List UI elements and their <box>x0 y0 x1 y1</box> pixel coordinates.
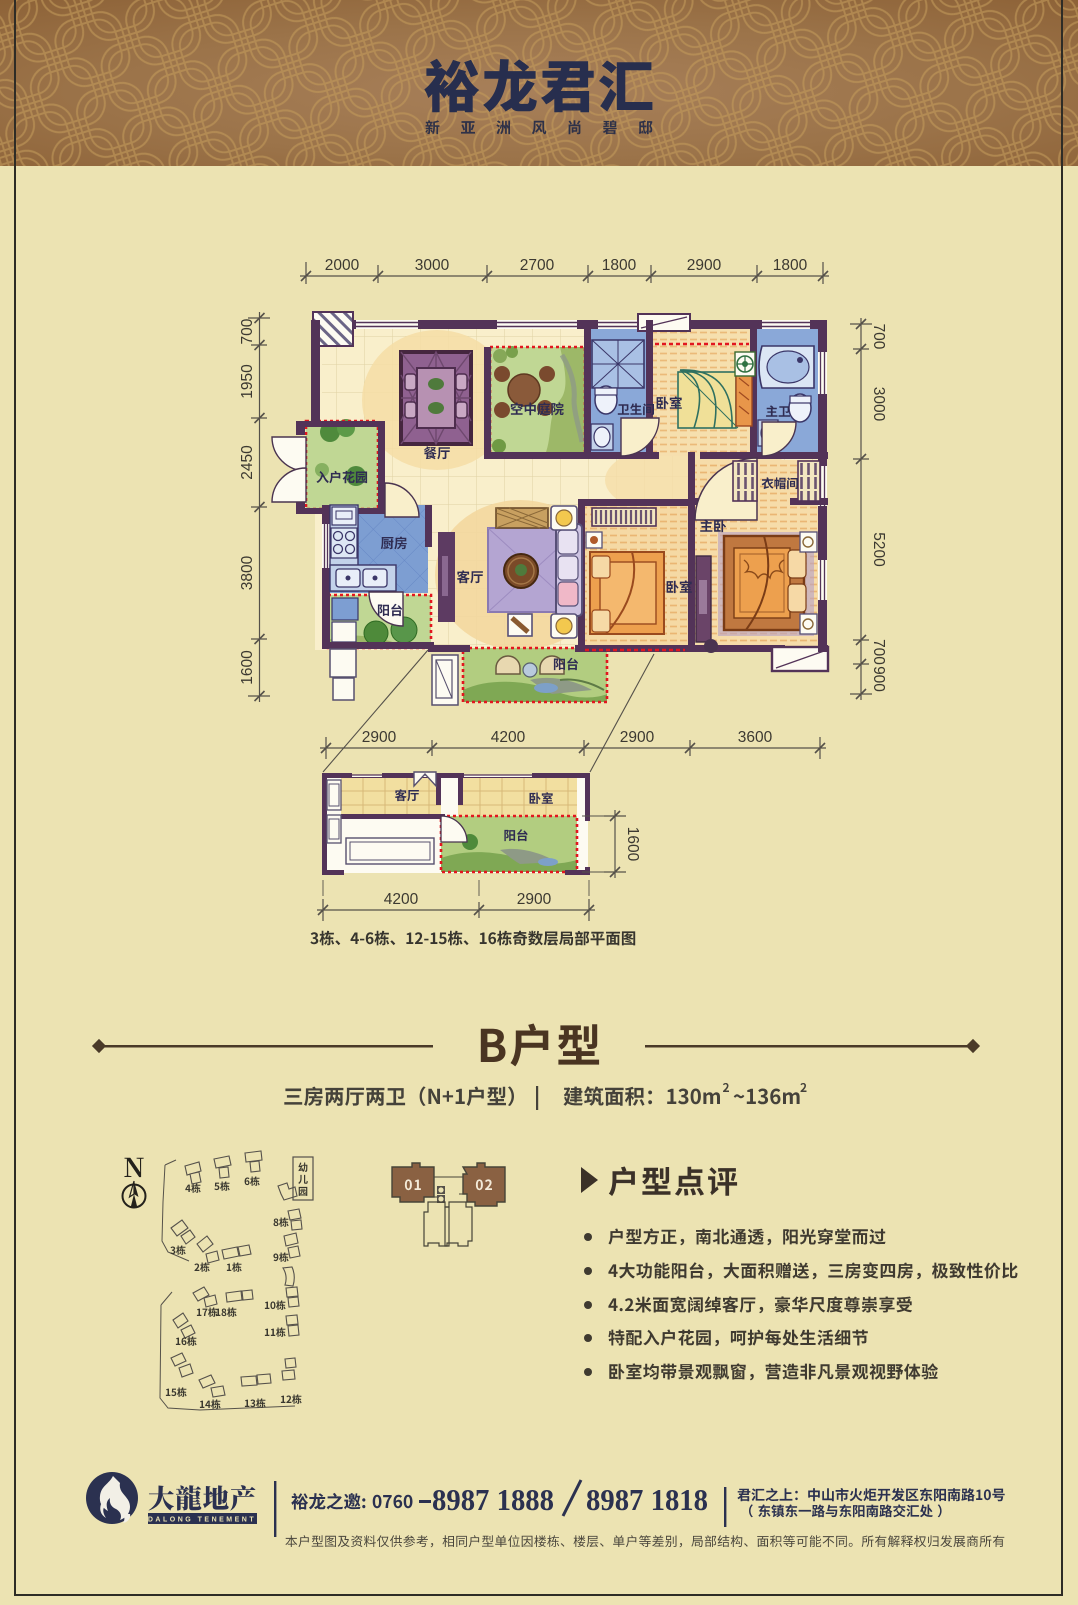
svg-text:2450: 2450 <box>239 445 256 480</box>
svg-text:5200: 5200 <box>870 532 887 567</box>
svg-text:700: 700 <box>870 639 887 665</box>
svg-text:700: 700 <box>870 324 887 350</box>
svg-text:3000: 3000 <box>415 257 450 274</box>
svg-text:3600: 3600 <box>738 729 773 746</box>
svg-text:4200: 4200 <box>491 729 526 746</box>
svg-text:3000: 3000 <box>870 387 887 422</box>
svg-text:2000: 2000 <box>325 257 360 274</box>
svg-text:1600: 1600 <box>239 650 256 685</box>
svg-text:3800: 3800 <box>239 555 256 590</box>
svg-text:8987 1888: 8987 1888 <box>432 1482 554 1517</box>
svg-text:1800: 1800 <box>602 257 637 274</box>
svg-text:2900: 2900 <box>620 729 655 746</box>
svg-text:2700: 2700 <box>520 257 555 274</box>
svg-text:700: 700 <box>239 318 256 344</box>
svg-text:900: 900 <box>870 666 887 692</box>
svg-text:2900: 2900 <box>362 729 397 746</box>
svg-text:8987 1818: 8987 1818 <box>586 1482 708 1517</box>
svg-text:1800: 1800 <box>773 257 808 274</box>
svg-text:1600: 1600 <box>624 827 641 862</box>
svg-text:2900: 2900 <box>687 257 722 274</box>
svg-text:DALONG TENEMENT: DALONG TENEMENT <box>148 1517 256 1524</box>
svg-text:2900: 2900 <box>517 891 552 908</box>
svg-text:4200: 4200 <box>384 891 419 908</box>
svg-text:1950: 1950 <box>239 364 256 399</box>
